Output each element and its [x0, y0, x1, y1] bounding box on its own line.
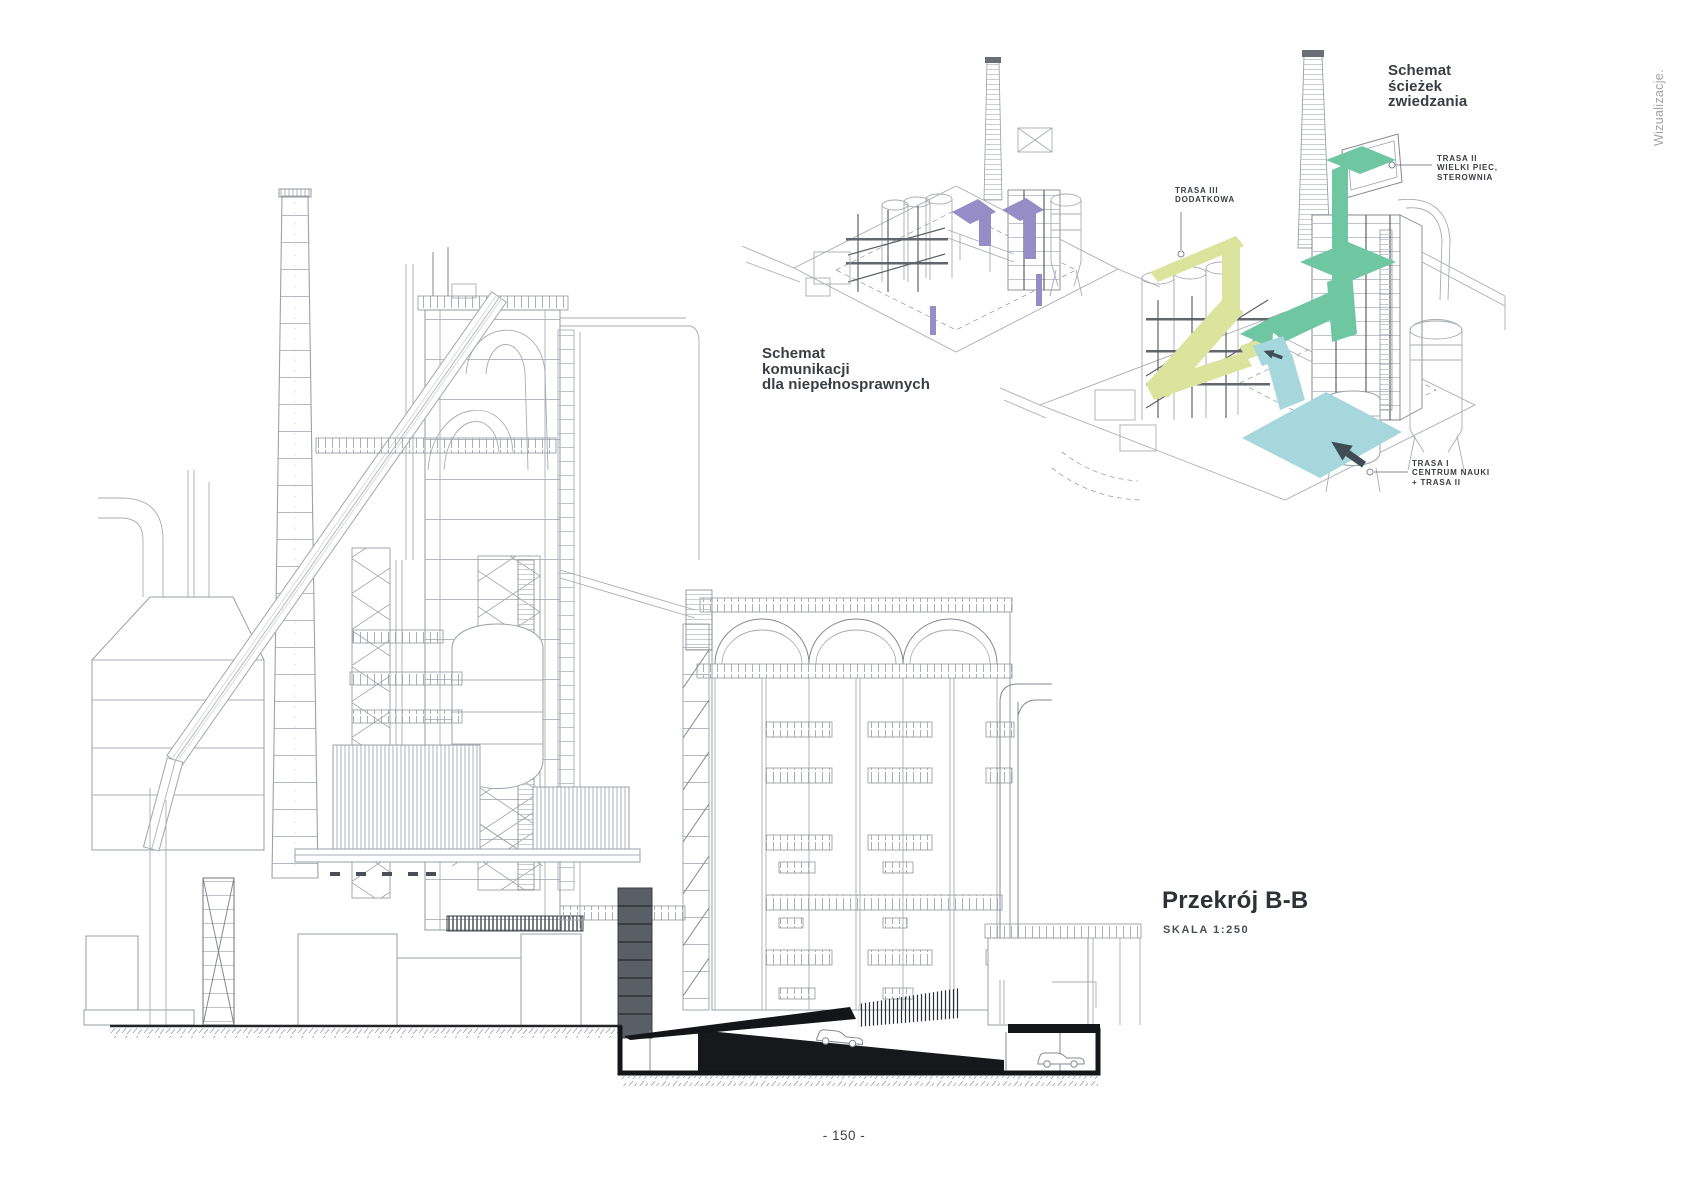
side-label: Wizualizacje. [1652, 54, 1666, 146]
elevator-shaft [930, 306, 936, 335]
axon2-title-line: Schemat [1388, 63, 1467, 79]
portfolio-page: Schemat komunikacji dla niepełnosprawnyc… [0, 0, 1684, 1191]
callout-line: CENTRUM NAUKI [1412, 468, 1490, 477]
callout-line: TRASA I [1412, 459, 1490, 468]
railing-row [316, 438, 556, 453]
axon1-title-line: komunikacji [762, 362, 930, 378]
axon1-title-line: Schemat [762, 346, 930, 362]
callout-trasa-ii: TRASA II WIELKI PIEC, STEROWNIA [1437, 154, 1498, 182]
axon1-title: Schemat komunikacji dla niepełnosprawnyc… [762, 346, 930, 393]
page-number: - 150 - [806, 1128, 882, 1143]
elevator-shaft [1024, 213, 1036, 259]
axon1-title-line: dla niepełnosprawnych [762, 377, 930, 393]
leader-circle [1178, 251, 1184, 257]
callout-line: DODATKOWA [1175, 195, 1235, 204]
callout-trasa-i: TRASA I CENTRUM NAUKI + TRASA II [1412, 459, 1490, 487]
chimney [272, 189, 318, 878]
callout-line: TRASA II [1437, 154, 1498, 163]
elevator-shaft [979, 214, 991, 246]
callout-line: + TRASA II [1412, 478, 1490, 487]
callout-line: WIELKI PIEC, [1437, 163, 1498, 172]
axon2-title: Schemat ścieżek zwiedzania [1388, 63, 1467, 110]
main-section-drawing [84, 189, 1141, 1086]
stair-tower [618, 888, 652, 1038]
callout-trasa-iii: TRASA III DODATKOWA [1175, 186, 1235, 205]
axon2-title-line: ścieżek [1388, 79, 1467, 95]
axon-accessibility [742, 57, 1160, 352]
leader-circle [1367, 469, 1373, 475]
elevator-shaft [1036, 274, 1042, 306]
section-title: Przekrój B-B [1162, 888, 1308, 914]
axon-tour-paths [1000, 50, 1505, 500]
scale-label: SKALA 1:250 [1163, 924, 1249, 936]
axon2-title-line: zwiedzania [1388, 94, 1467, 110]
page-graphics [0, 0, 1684, 1191]
ground-and-underground [110, 980, 1100, 1086]
leader-circle [1389, 162, 1395, 168]
ramp-fill [698, 1030, 1004, 1072]
callout-line: TRASA III [1175, 186, 1235, 195]
callout-line: STEROWNIA [1437, 173, 1498, 182]
car-parked [1038, 1053, 1084, 1067]
earth-hatch [110, 1028, 622, 1038]
